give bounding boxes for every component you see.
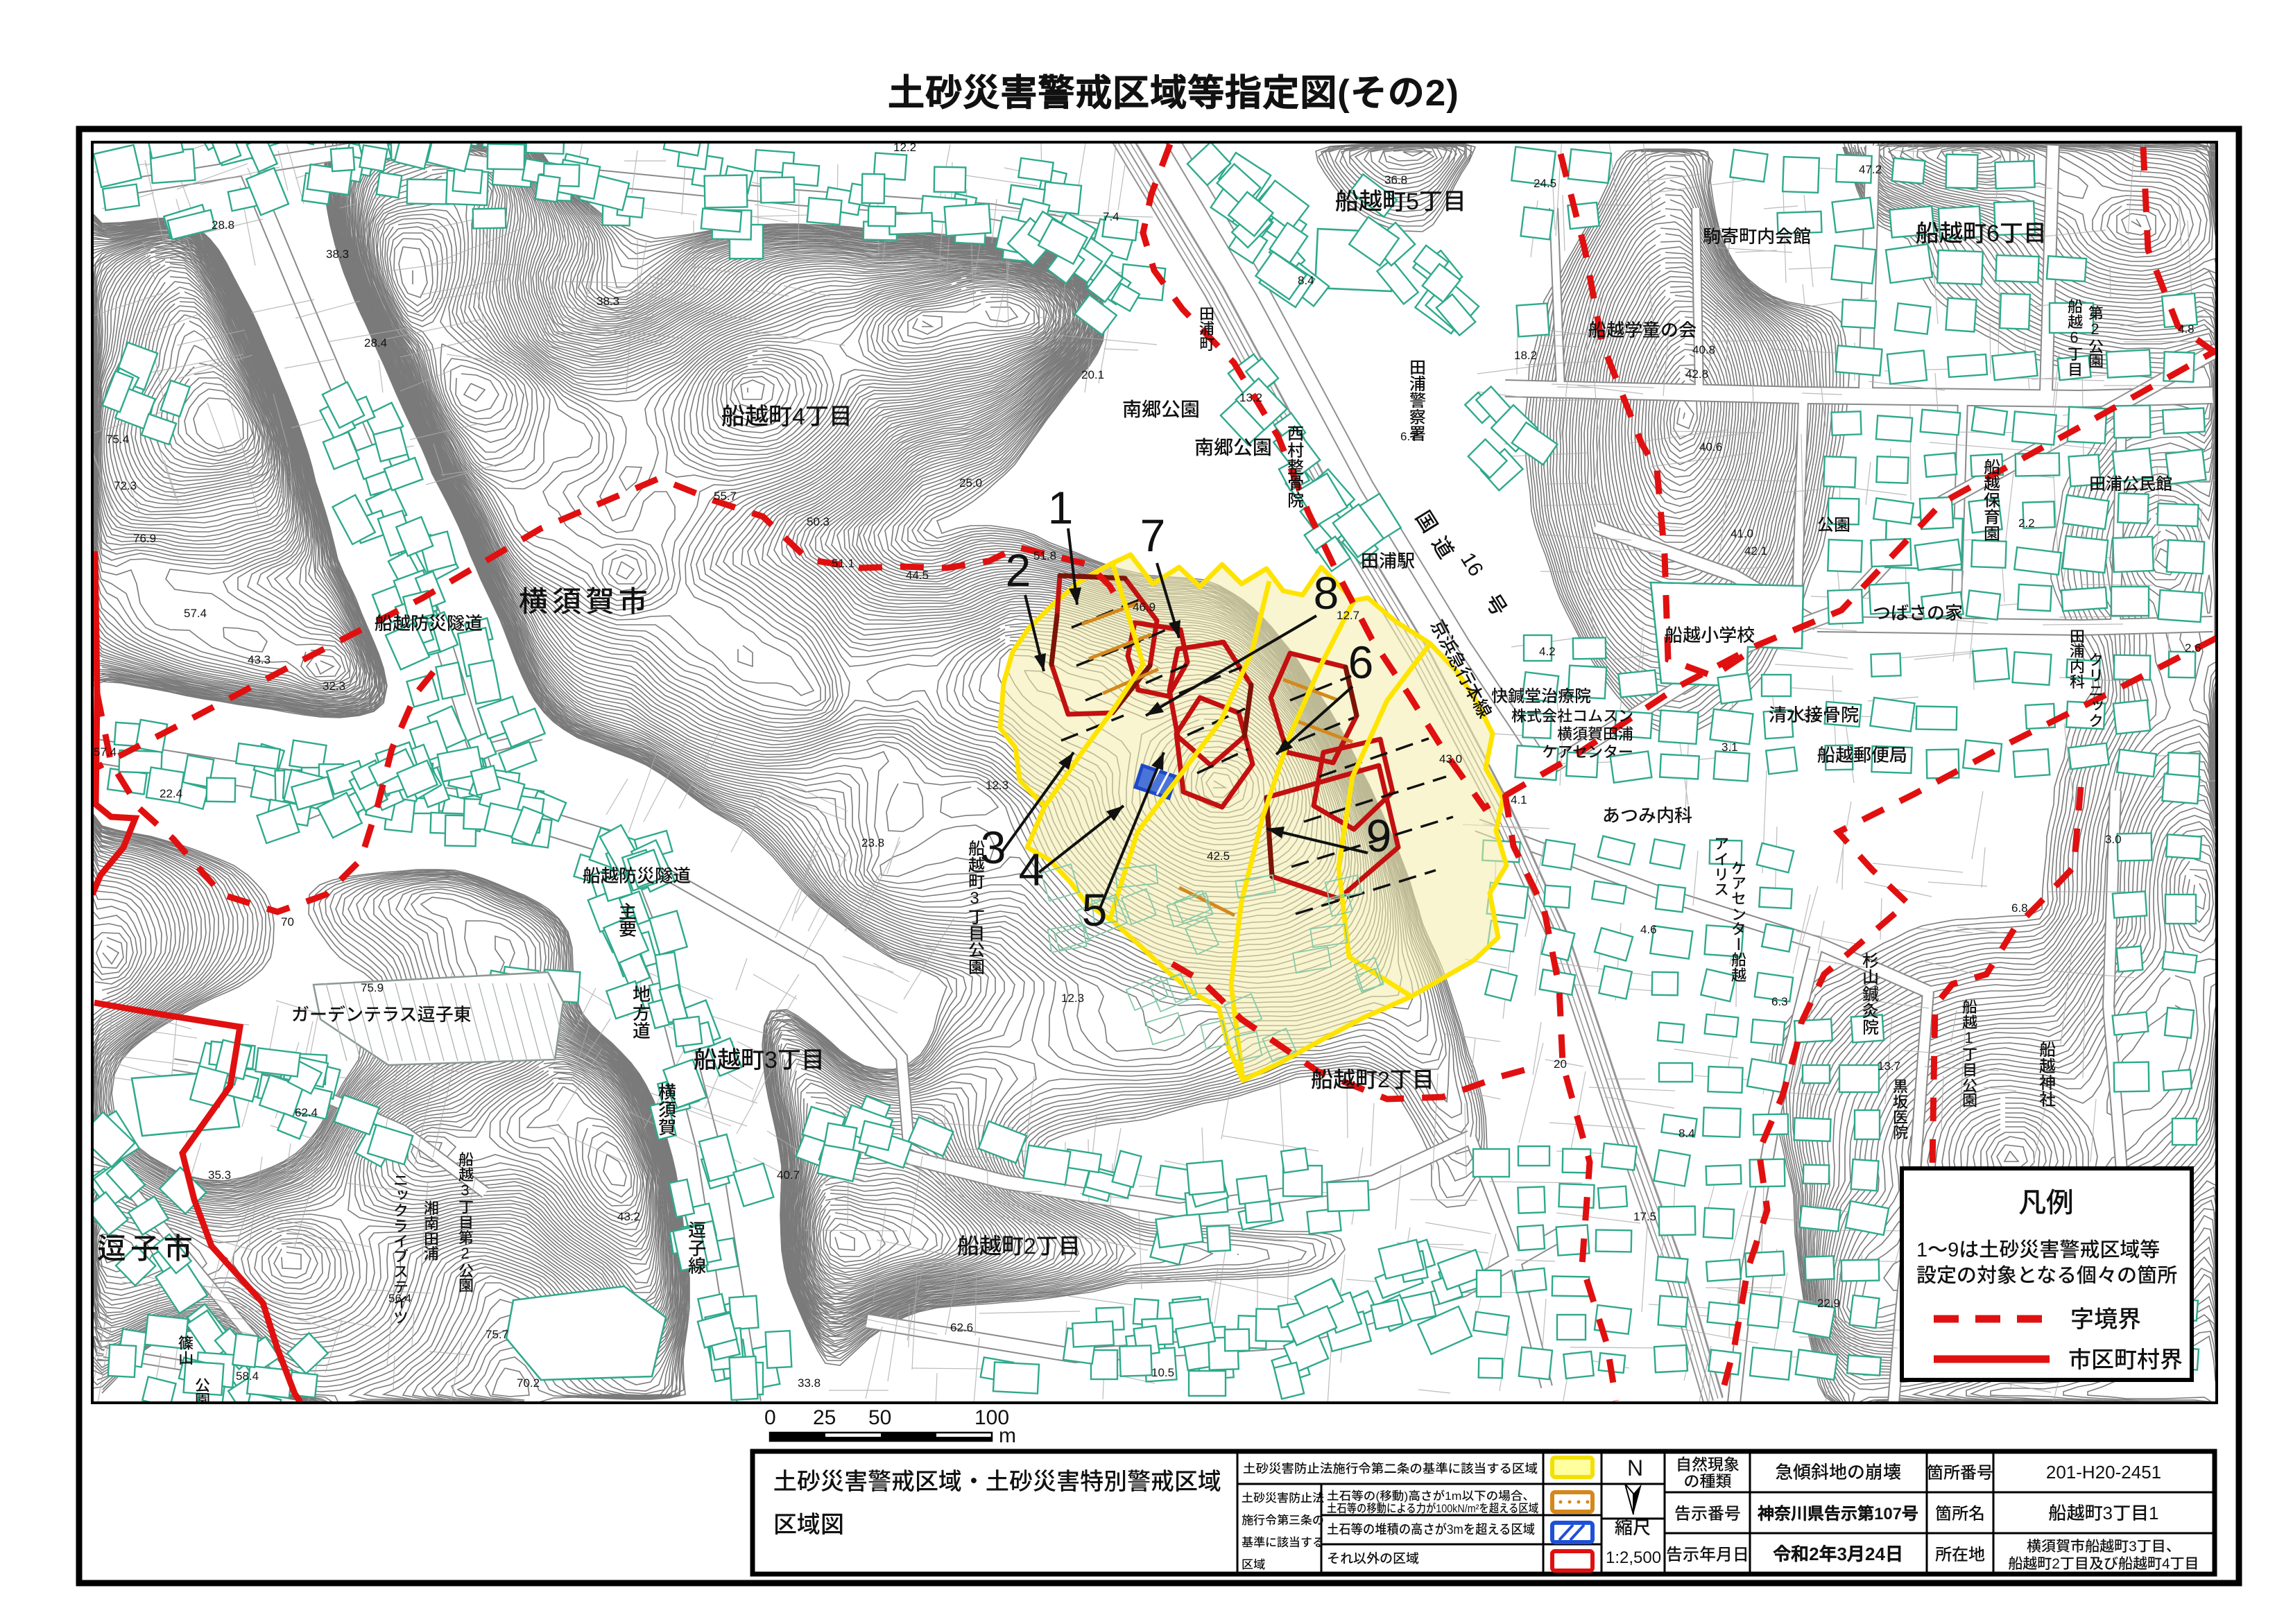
svg-text:ケアセンター: ケアセンター [1542,740,1633,762]
svg-text:土砂災害防止法: 土砂災害防止法 [1242,1488,1324,1505]
svg-text:38.3: 38.3 [596,291,619,309]
svg-text:横須賀: 横須賀 [655,1082,680,1136]
svg-text:7.4: 7.4 [1103,207,1119,224]
svg-text:神奈川県告示第107号: 神奈川県告示第107号 [1757,1500,1918,1524]
svg-text:設定の対象となる個々の箇所: 設定の対象となる個々の箇所 [1916,1259,2177,1288]
svg-text:土砂災害警戒区域等指定図(その2): 土砂災害警戒区域等指定図(その2) [888,64,1459,116]
svg-text:32.3: 32.3 [323,676,345,693]
svg-text:南郷公園: 南郷公園 [1194,433,1272,460]
svg-text:船越町3丁目公園: 船越町3丁目公園 [965,839,989,974]
svg-text:22.4: 22.4 [160,784,182,801]
svg-text:12.7: 12.7 [1337,605,1359,623]
svg-text:所在地: 所在地 [1935,1541,1985,1565]
svg-text:51.8: 51.8 [1033,546,1056,563]
svg-text:快鍼堂治療院: 快鍼堂治療院 [1491,682,1591,707]
svg-text:湘南田浦: 湘南田浦 [420,1200,443,1261]
svg-text:の種類: の種類 [1684,1468,1732,1492]
svg-text:35.3: 35.3 [208,1165,231,1182]
svg-text:1:2,500: 1:2,500 [1606,1544,1661,1568]
svg-text:ガーデンテラス逗子東: ガーデンテラス逗子東 [291,1001,471,1026]
svg-text:57.4: 57.4 [184,603,207,621]
svg-text:田浦公民館: 田浦公民館 [2089,470,2172,494]
svg-text:20.1: 20.1 [1081,365,1104,382]
svg-text:75.4: 75.4 [106,429,129,447]
svg-text:土石等の移動による力が100kN/m²を超える区域: 土石等の移動による力が100kN/m²を超える区域 [1327,1498,1538,1516]
svg-text:船越6丁目: 船越6丁目 [2064,298,2086,377]
svg-text:急傾斜地の崩壊: 急傾斜地の崩壊 [1775,1458,1901,1484]
svg-text:8.4: 8.4 [1678,1123,1695,1141]
svg-text:6: 6 [1348,625,1374,692]
svg-text:1: 1 [1048,471,1074,537]
svg-text:9: 9 [1366,799,1392,865]
svg-text:船越町2丁目: 船越町2丁目 [1311,1062,1434,1094]
svg-text:13.7: 13.7 [1878,1056,1900,1073]
svg-text:57.4: 57.4 [94,742,117,759]
svg-text:主要: 主要 [615,901,641,938]
svg-text:土砂災害防止法施行令第二条の基準に該当する区域: 土砂災害防止法施行令第二条の基準に該当する区域 [1243,1459,1538,1477]
svg-text:市区町村界: 市区町村界 [2068,1341,2183,1374]
svg-text:40.8: 40.8 [1692,340,1715,357]
svg-text:船越郵便局: 船越郵便局 [1817,741,1907,767]
svg-text:船越小学校: 船越小学校 [1665,621,1755,647]
svg-text:201-H20-2451: 201-H20-2451 [2046,1458,2161,1484]
svg-text:字境界: 字境界 [2070,1300,2141,1334]
svg-text:箇所番号: 箇所番号 [1927,1459,1993,1483]
svg-text:駒寄町内会館: 駒寄町内会館 [1703,223,1811,248]
svg-text:40.7: 40.7 [777,1165,800,1182]
svg-text:それ以外の区域: それ以外の区域 [1327,1548,1419,1567]
svg-text:13.2: 13.2 [1239,388,1262,405]
svg-text:62.6: 62.6 [950,1318,973,1335]
svg-text:6.7: 6.7 [1400,426,1417,444]
svg-text:56.4: 56.4 [388,1288,411,1306]
svg-text:51.1: 51.1 [832,553,854,571]
svg-text:南郷公園: 南郷公園 [1122,395,1200,422]
svg-text:43.0: 43.0 [1439,749,1462,766]
svg-text:区域: 区域 [1242,1555,1265,1572]
svg-text:杉山鍼灸院: 杉山鍼灸院 [1859,951,1883,1035]
svg-text:クリニック: クリニック [2085,652,2107,728]
svg-text:逗子線: 逗子線 [685,1220,710,1275]
svg-text:基準に該当する: 基準に該当する [1242,1532,1324,1550]
svg-text:43.2: 43.2 [617,1207,640,1224]
svg-text:70.2: 70.2 [517,1373,540,1390]
svg-text:船越町4丁目: 船越町4丁目 [721,397,852,431]
svg-text:22.9: 22.9 [1817,1293,1840,1311]
svg-text:25.0: 25.0 [959,473,982,490]
svg-text:3.1: 3.1 [1721,737,1738,754]
svg-text:44.5: 44.5 [906,565,929,582]
svg-text:船越防災隧道: 船越防災隧道 [375,610,483,635]
svg-text:西村整骨院: 西村整骨院 [1284,424,1308,508]
svg-text:船越町5丁目: 船越町5丁目 [1335,182,1466,216]
svg-text:縮尺: 縮尺 [1615,1514,1651,1539]
svg-text:船越町2丁目: 船越町2丁目 [957,1229,1081,1261]
svg-text:6.8: 6.8 [2011,898,2028,915]
svg-text:47.2: 47.2 [1859,159,1882,177]
svg-text:船越3丁目第2公園: 船越3丁目第2公園 [455,1151,477,1293]
svg-text:4: 4 [1019,833,1045,899]
svg-text:72.3: 72.3 [114,476,137,493]
svg-text:36.8: 36.8 [1384,170,1407,187]
svg-text:4.1: 4.1 [1511,790,1527,807]
svg-text:2: 2 [1006,533,1031,600]
svg-text:18.2: 18.2 [1514,345,1537,363]
svg-text:船越保育園: 船越保育園 [1980,458,2004,541]
svg-text:田浦町: 田浦町 [1196,305,1218,352]
svg-text:4.8: 4.8 [2178,319,2195,336]
svg-text:23.8: 23.8 [861,833,884,850]
svg-text:17.5: 17.5 [1633,1207,1656,1224]
svg-text:令和2年3月24日: 令和2年3月24日 [1772,1540,1903,1566]
svg-text:38.3: 38.3 [326,244,349,261]
svg-text:70: 70 [281,912,294,929]
svg-text:62.4: 62.4 [295,1103,318,1120]
svg-text:区域図: 区域図 [773,1505,844,1539]
svg-text:田浦駅: 田浦駅 [1361,547,1415,573]
svg-text:7: 7 [1140,499,1166,565]
svg-text:黒坂医院: 黒坂医院 [1889,1078,1912,1139]
svg-text:つばさの家: つばさの家 [1873,599,1963,625]
svg-text:46.9: 46.9 [1133,597,1156,614]
svg-text:ケアセンター船越: ケアセンター船越 [1728,860,1750,983]
svg-text:N: N [1627,1451,1643,1483]
svg-text:42.1: 42.1 [1744,541,1767,558]
svg-text:75.9: 75.9 [361,978,384,995]
svg-text:逗子市: 逗子市 [97,1225,197,1268]
svg-text:施行令第三条の: 施行令第三条の [1242,1510,1324,1528]
svg-text:凡例: 凡例 [2018,1180,2074,1220]
svg-text:船越学童の会: 船越学童の会 [1588,316,1697,342]
svg-text:4.2: 4.2 [1539,641,1556,659]
svg-text:船越神社: 船越神社 [2036,1040,2060,1107]
svg-text:40.6: 40.6 [1699,437,1722,454]
svg-text:42.8: 42.8 [1685,364,1708,381]
svg-text:篠山: 篠山 [175,1335,197,1365]
svg-text:3.0: 3.0 [2105,829,2122,847]
svg-text:公園: 公園 [1817,511,1850,535]
svg-text:6.3: 6.3 [1771,992,1788,1009]
svg-text:12.3: 12.3 [986,775,1008,793]
svg-text:第2公園: 第2公園 [2085,305,2107,368]
svg-text:28.8: 28.8 [212,215,234,232]
svg-text:告示番号: 告示番号 [1674,1500,1741,1524]
svg-text:25: 25 [813,1400,836,1431]
svg-text:42.5: 42.5 [1207,846,1230,863]
svg-text:20: 20 [1554,1054,1567,1071]
svg-text:船越町3丁目: 船越町3丁目 [694,1041,825,1075]
svg-text:12.3: 12.3 [1061,988,1084,1005]
svg-text:m: m [999,1418,1016,1449]
svg-text:1〜9は土砂災害警戒区域等: 1〜9は土砂災害警戒区域等 [1916,1234,2160,1263]
svg-text:50: 50 [868,1400,891,1431]
svg-text:箇所名: 箇所名 [1935,1500,1985,1524]
svg-text:55.7: 55.7 [714,486,737,503]
svg-text:告示年月日: 告示年月日 [1666,1541,1749,1565]
svg-text:24.5: 24.5 [1534,173,1556,191]
svg-text:あつみ内科: あつみ内科 [1602,802,1692,827]
svg-text:2.2: 2.2 [2018,513,2035,530]
svg-text:船越防災隧道: 船越防災隧道 [583,862,691,888]
svg-text:8: 8 [1314,556,1339,623]
svg-text:横須賀市: 横須賀市 [519,578,652,621]
svg-text:76.9: 76.9 [133,528,156,546]
svg-text:土石等の堆積の高さが3mを超える区域: 土石等の堆積の高さが3mを超える区域 [1327,1519,1535,1538]
svg-text:4.6: 4.6 [1640,919,1657,937]
svg-text:10.5: 10.5 [1151,1363,1174,1380]
svg-text:2.6: 2.6 [2185,638,2201,655]
svg-text:33.8: 33.8 [798,1373,821,1390]
svg-text:船越町2丁目及び船越町4丁目: 船越町2丁目及び船越町4丁目 [2008,1553,2199,1573]
svg-text:41.0: 41.0 [1731,524,1753,541]
svg-text:43.3: 43.3 [248,650,270,667]
svg-text:0: 0 [764,1400,776,1431]
svg-text:土砂災害警戒区域・土砂災害特別警戒区域: 土砂災害警戒区域・土砂災害特別警戒区域 [773,1462,1221,1496]
svg-text:船越1丁目公園: 船越1丁目公園 [1959,999,1981,1107]
svg-text:5: 5 [1082,873,1108,940]
svg-text:8.4: 8.4 [1298,270,1314,288]
svg-text:3.1: 3.1 [1803,707,1820,725]
svg-text:28.4: 28.4 [364,333,387,350]
svg-text:船越町3丁目1: 船越町3丁目1 [2049,1499,2159,1525]
svg-text:船越町6丁目: 船越町6丁目 [1916,214,2047,248]
svg-text:50.3: 50.3 [807,512,830,529]
svg-text:58.4: 58.4 [236,1366,259,1383]
svg-text:地方道: 地方道 [629,985,655,1039]
svg-text:75.7: 75.7 [486,1324,508,1342]
